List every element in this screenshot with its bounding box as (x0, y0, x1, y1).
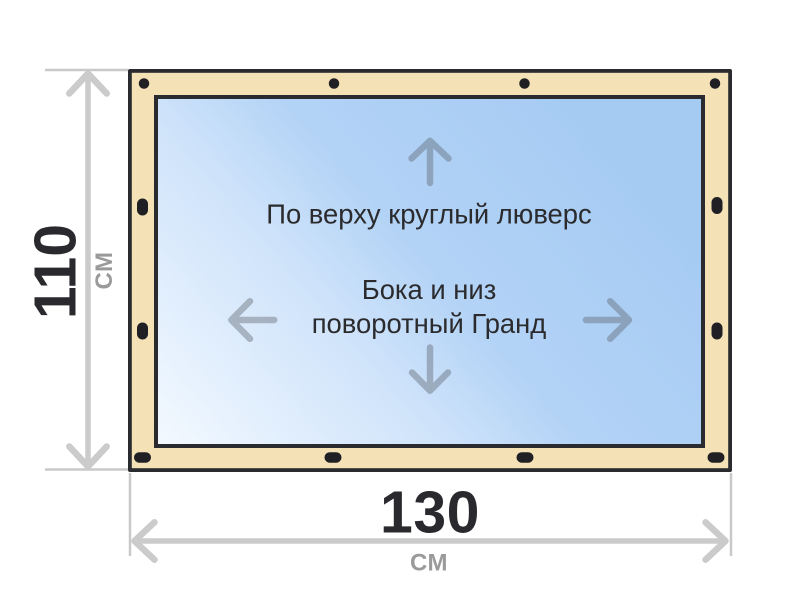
svg-text:По верху круглый люверс: По верху круглый люверс (266, 199, 591, 230)
svg-text:СМ: СМ (91, 251, 118, 289)
svg-text:СМ: СМ (410, 550, 448, 577)
svg-text:130: 130 (380, 480, 480, 546)
svg-text:Бока и низ: Бока и низ (362, 274, 497, 305)
svg-text:110: 110 (23, 224, 89, 319)
svg-text:поворотный Гранд: поворотный Гранд (312, 308, 547, 339)
